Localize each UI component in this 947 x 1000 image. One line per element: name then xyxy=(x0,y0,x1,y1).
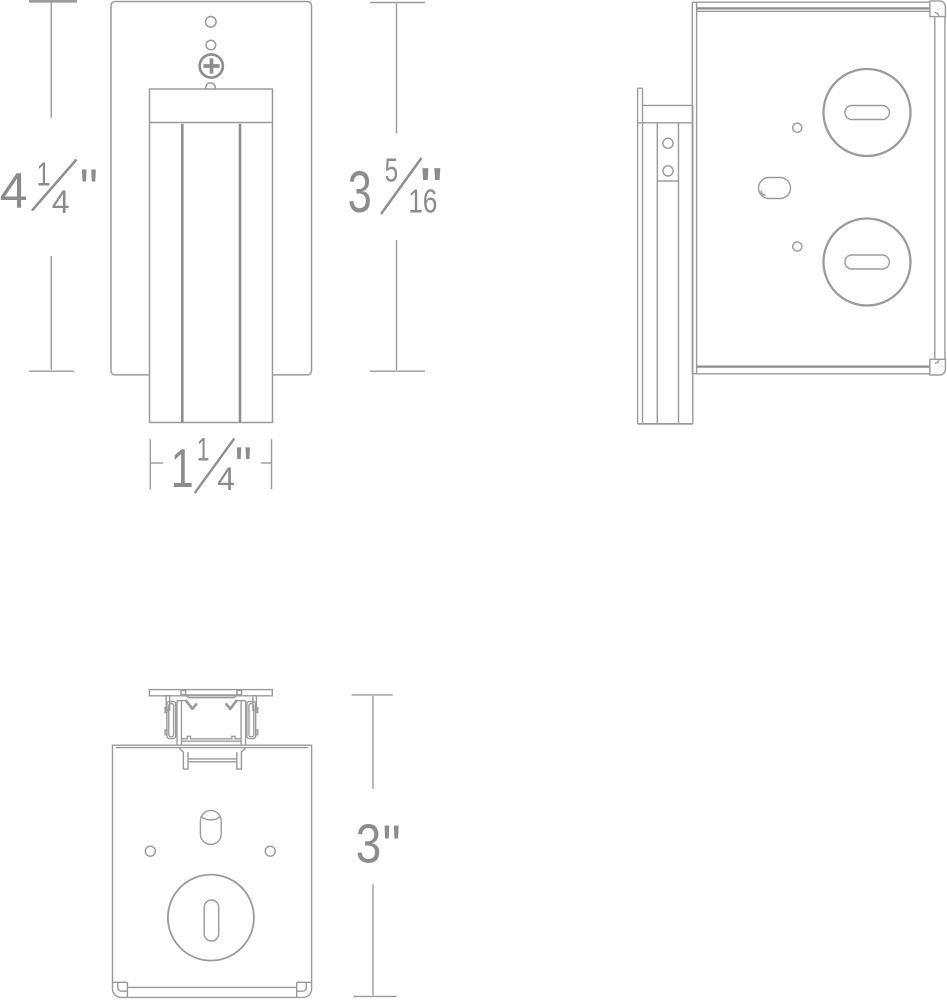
svg-text:3: 3 xyxy=(356,813,382,875)
svg-text:": " xyxy=(80,158,98,220)
svg-text:": " xyxy=(382,814,400,880)
svg-text:": " xyxy=(235,437,252,497)
svg-text:": " xyxy=(420,157,444,218)
svg-text:4: 4 xyxy=(0,163,27,219)
svg-text:3: 3 xyxy=(348,160,372,225)
svg-text:5: 5 xyxy=(385,152,399,189)
svg-text:1: 1 xyxy=(37,155,51,192)
svg-text:4: 4 xyxy=(52,184,70,220)
svg-text:4: 4 xyxy=(217,461,235,497)
svg-text:1: 1 xyxy=(197,432,210,468)
svg-text:1: 1 xyxy=(171,437,194,499)
